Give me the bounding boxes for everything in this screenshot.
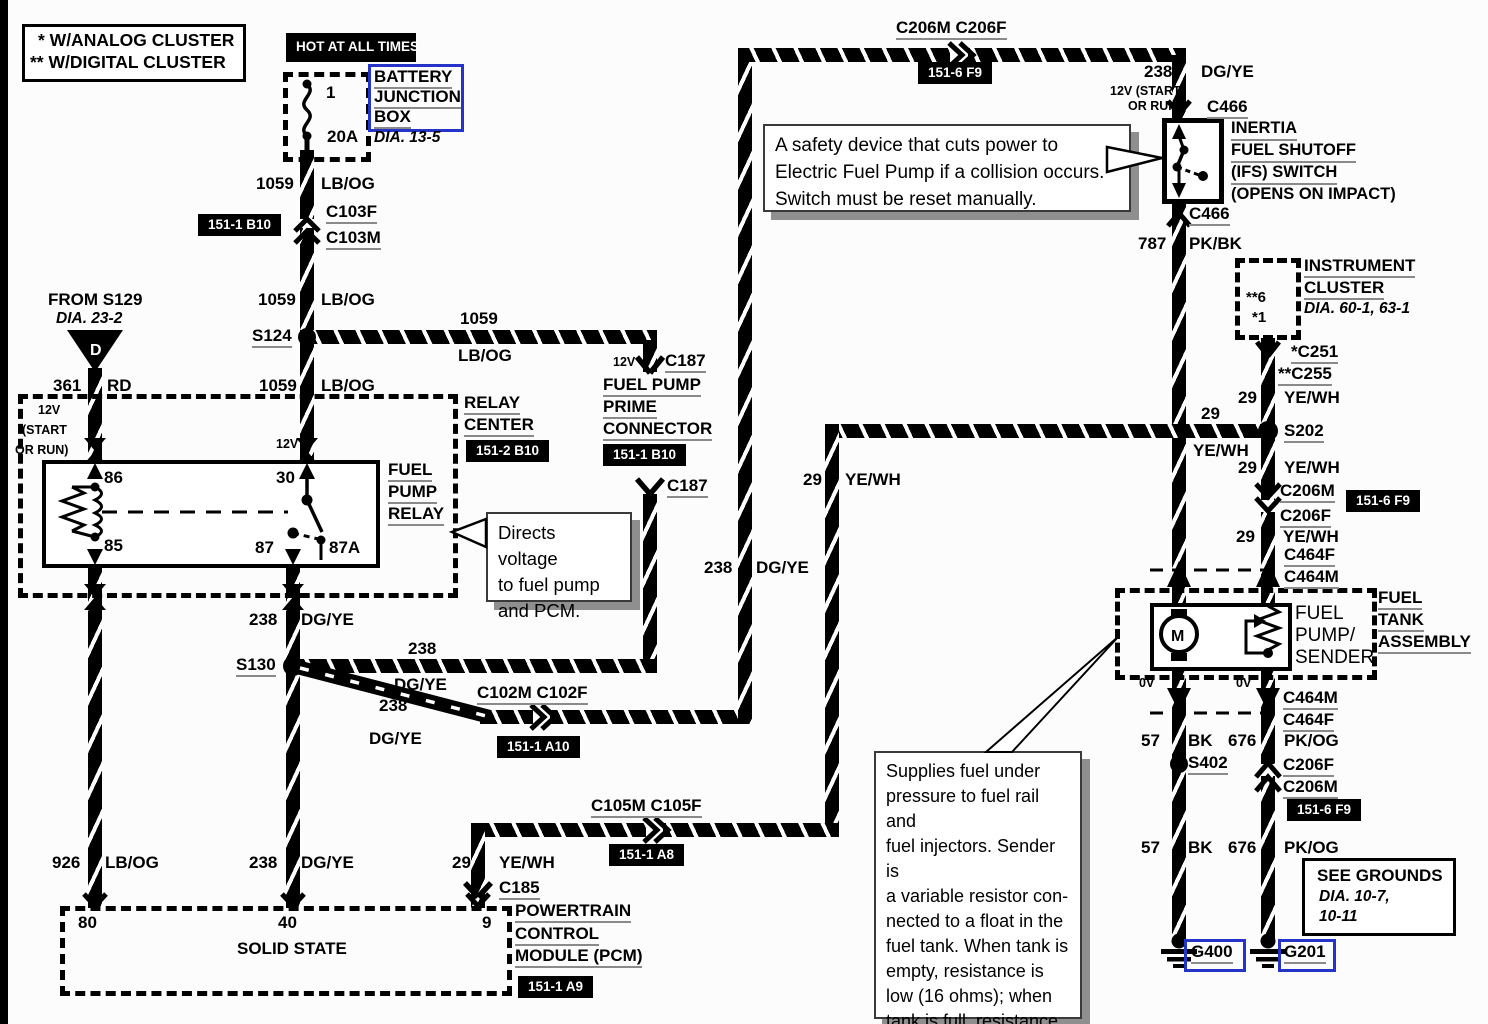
label-787: 787 bbox=[1138, 235, 1166, 253]
legend-box: * W/ANALOG CLUSTER ** W/DIGITAL CLUSTER bbox=[22, 24, 246, 82]
label-29-h: 29 bbox=[1201, 405, 1220, 423]
label-g201[interactable]: G201 bbox=[1284, 943, 1326, 964]
label-pcm-3: MODULE (PCM) bbox=[515, 947, 642, 968]
label-57-b: 57 bbox=[1141, 839, 1160, 857]
supplies-callout: Supplies fuel under pressure to fuel rai… bbox=[874, 751, 1082, 1019]
s129-triangle-icon: D bbox=[67, 330, 123, 372]
instrument-cluster-box bbox=[1235, 258, 1301, 340]
label-cluster-dia: DIA. 60-1, 63-1 bbox=[1304, 301, 1410, 318]
label-c255: **C255 bbox=[1278, 365, 1332, 386]
label-12v-relay: 12V bbox=[276, 438, 298, 452]
label-c102: C102M C102F bbox=[477, 684, 588, 705]
supplies-line-1: Supplies fuel under bbox=[886, 759, 1070, 784]
label-c251: *C251 bbox=[1291, 343, 1338, 364]
label-ifs-3: (IFS) SWITCH bbox=[1231, 164, 1337, 185]
label-pcm-1: POWERTRAIN bbox=[515, 902, 631, 923]
supplies-line-3: fuel injectors. Sender is bbox=[886, 834, 1070, 884]
supplies-line-5: nected to a float in the bbox=[886, 909, 1070, 934]
label-c185: C185 bbox=[499, 879, 540, 900]
label-yewh-b: YE/WH bbox=[1284, 459, 1340, 477]
label-29-drop: 29 bbox=[803, 471, 822, 489]
legend-digital: ** W/DIGITAL CLUSTER bbox=[30, 53, 226, 72]
safety-line-3: Switch must be reset manually. bbox=[775, 186, 1119, 213]
scan-edge bbox=[0, 0, 8, 1024]
label-lbog-a: LB/OG bbox=[321, 175, 375, 193]
supplies-line-2: pressure to fuel rail and bbox=[886, 784, 1070, 834]
label-start-left: (START bbox=[22, 424, 67, 438]
label-12v-left: 12V bbox=[38, 404, 60, 418]
bjb-dia: DIA. 13-5 bbox=[374, 130, 440, 147]
supplies-pointer bbox=[986, 636, 1119, 752]
label-prime-3: CONNECTOR bbox=[603, 420, 712, 441]
label-pkbk: PK/BK bbox=[1189, 235, 1242, 253]
label-1059-b: 1059 bbox=[258, 291, 296, 309]
wire-cluster-to-sender bbox=[1261, 338, 1275, 612]
see-grounds-dia1: DIA. 10-7, bbox=[1319, 889, 1390, 906]
label-lbog-b: LB/OG bbox=[321, 291, 375, 309]
ref-tag-pcm: 151-1 A9 bbox=[518, 976, 593, 998]
fuse-rating: 20A bbox=[327, 128, 358, 146]
label-pump-3: SENDER bbox=[1295, 648, 1374, 669]
label-c105: C105M C105F bbox=[591, 797, 702, 818]
label-0v-right: 0V bbox=[1236, 677, 1251, 691]
label-c206f-right: C206F bbox=[1280, 507, 1331, 528]
ref-tag-c105: 151-1 A8 bbox=[609, 844, 684, 866]
label-12v-start-right: 12V (START bbox=[1110, 85, 1181, 99]
label-12v-prime: 12V bbox=[613, 356, 635, 370]
label-238-ifs: 238 bbox=[1144, 63, 1172, 81]
label-dgye-b: DG/YE bbox=[394, 676, 447, 694]
wire-prime-stub bbox=[643, 340, 657, 372]
ref-tag-c206-lower: 151-6 F9 bbox=[1287, 799, 1361, 821]
wire-c187-down bbox=[643, 494, 657, 673]
label-c466-lower: C466 bbox=[1189, 205, 1230, 226]
label-s402: S402 bbox=[1188, 754, 1228, 775]
wire-relay87-to-pcm40 bbox=[286, 564, 300, 908]
label-solid-state: SOLID STATE bbox=[237, 940, 347, 958]
supplies-line-6: fuel tank. When tank is bbox=[886, 934, 1070, 959]
label-676-a: 676 bbox=[1228, 732, 1256, 750]
label-bk-a: BK bbox=[1188, 732, 1213, 750]
ref-tag-relay-center: 151-2 B10 bbox=[466, 440, 549, 462]
label-238-riser: 238 bbox=[704, 559, 732, 577]
label-cluster-pin6: **6 bbox=[1246, 290, 1266, 306]
label-dgye-a: DG/YE bbox=[301, 611, 354, 629]
fuse-number: 1 bbox=[326, 84, 335, 102]
label-tank-2: TANK bbox=[1378, 611, 1424, 632]
label-c206-top: C206M C206F bbox=[896, 19, 1007, 40]
label-s202: S202 bbox=[1284, 422, 1324, 443]
label-dgye-riser: DG/YE bbox=[756, 559, 809, 577]
label-ifs-2: FUEL SHUTOFF bbox=[1231, 142, 1356, 163]
label-yewh-drop: YE/WH bbox=[845, 471, 901, 489]
directs-callout: Directs voltage to fuel pump and PCM. bbox=[486, 512, 632, 602]
ref-tag-c206-right: 151-6 F9 bbox=[1346, 490, 1420, 512]
label-tank-1: FUEL bbox=[1378, 589, 1422, 610]
wire-c185-to-pcm9 bbox=[471, 823, 485, 908]
label-238-d: 238 bbox=[249, 854, 277, 872]
label-dgye-c: DG/YE bbox=[369, 730, 422, 748]
ref-tag-c206-top: 151-6 F9 bbox=[918, 62, 992, 84]
label-pin-87a: 87A bbox=[329, 539, 360, 557]
label-prime-2: PRIME bbox=[603, 398, 657, 419]
directs-line-1: Directs voltage bbox=[498, 520, 620, 572]
label-yewh-a: YE/WH bbox=[1284, 389, 1340, 407]
label-dgye-ifs: DG/YE bbox=[1201, 63, 1254, 81]
label-pin-40: 40 bbox=[278, 914, 297, 932]
label-cluster-2: CLUSTER bbox=[1304, 279, 1384, 300]
bjb-label-3: BOX bbox=[374, 108, 411, 129]
label-c187-lower: C187 bbox=[667, 477, 708, 498]
label-s130: S130 bbox=[236, 656, 276, 677]
label-c206m-lower: C206M bbox=[1283, 778, 1338, 799]
safety-line-2: Electric Fuel Pump if a collision occurs… bbox=[775, 159, 1119, 186]
ifs-switch-box bbox=[1162, 118, 1224, 204]
wire-c102 bbox=[480, 710, 752, 724]
label-bk-b: BK bbox=[1188, 839, 1213, 857]
label-ifs-4: (OPENS ON IMPACT) bbox=[1231, 186, 1396, 204]
wire-29-drop bbox=[825, 424, 839, 837]
wire-s130-to-c187 bbox=[293, 659, 657, 673]
label-676-b: 676 bbox=[1228, 839, 1256, 857]
label-c464m-lower: C464M bbox=[1283, 689, 1338, 710]
label-orrun-right: OR RUN) bbox=[1128, 100, 1181, 114]
supplies-line-9: tank is full, resistance bbox=[886, 1009, 1070, 1024]
label-c206f-lower: C206F bbox=[1283, 756, 1334, 777]
label-c464f-lower: C464F bbox=[1283, 711, 1334, 732]
label-c466-upper: C466 bbox=[1207, 98, 1248, 119]
wire-238-riser bbox=[738, 48, 752, 724]
label-pin-80: 80 bbox=[78, 914, 97, 932]
safety-callout: A safety device that cuts power to Elect… bbox=[763, 124, 1131, 212]
label-238-b: 238 bbox=[408, 640, 436, 658]
wire-c105 bbox=[478, 823, 839, 837]
label-1059-c: 1059 bbox=[460, 310, 498, 328]
wire-relay85-to-pcm80 bbox=[88, 564, 102, 908]
label-1059-d: 1059 bbox=[259, 377, 297, 395]
label-orrun-left: OR RUN) bbox=[15, 444, 68, 458]
label-pump-2: PUMP/ bbox=[1295, 626, 1355, 647]
directs-line-2: to fuel pump bbox=[498, 572, 620, 598]
label-prime-1: FUEL PUMP bbox=[603, 376, 701, 397]
label-pin-87: 87 bbox=[255, 539, 274, 557]
label-c103m: C103M bbox=[326, 229, 381, 250]
label-57-a: 57 bbox=[1141, 732, 1160, 750]
label-from-s129: FROM S129 bbox=[48, 291, 142, 309]
label-s129-dia: DIA. 23-2 bbox=[56, 311, 122, 328]
label-g400[interactable]: G400 bbox=[1191, 943, 1233, 964]
label-361: 361 bbox=[53, 377, 81, 395]
safety-line-1: A safety device that cuts power to bbox=[775, 132, 1119, 159]
label-pcm-2: CONTROL bbox=[515, 925, 599, 946]
wire-sender-ground bbox=[1261, 660, 1275, 938]
label-238-a: 238 bbox=[249, 611, 277, 629]
supplies-line-7: empty, resistance is bbox=[886, 959, 1070, 984]
label-ifs-1: INERTIA bbox=[1231, 120, 1297, 141]
label-29-a: 29 bbox=[1238, 389, 1257, 407]
label-29-c185: 29 bbox=[452, 854, 471, 872]
label-tank-3: ASSEMBLY bbox=[1378, 633, 1471, 654]
label-yewh-c: YE/WH bbox=[1283, 528, 1339, 546]
see-grounds-dia2: 10-11 bbox=[1319, 909, 1358, 926]
label-pkog-a: PK/OG bbox=[1284, 732, 1339, 750]
supplies-line-4: a variable resistor con- bbox=[886, 884, 1070, 909]
fuel-pump-sender-box bbox=[1150, 603, 1292, 671]
label-relay-center-1: RELAY bbox=[464, 394, 520, 415]
triangle-d-letter: D bbox=[90, 342, 102, 359]
label-dgye-d: DG/YE bbox=[301, 854, 354, 872]
label-0v-left: 0V bbox=[1139, 677, 1154, 691]
label-relay-3: RELAY bbox=[388, 505, 444, 526]
label-cluster-pin1: *1 bbox=[1252, 310, 1266, 326]
label-926: 926 bbox=[52, 854, 80, 872]
c187-lower-fork-icon bbox=[637, 479, 663, 494]
label-cluster-1: INSTRUMENT bbox=[1304, 257, 1415, 278]
label-rd: RD bbox=[107, 377, 132, 395]
label-29-b: 29 bbox=[1238, 459, 1257, 477]
wire-pump-ground bbox=[1172, 660, 1186, 938]
label-relay-center-2: CENTER bbox=[464, 416, 534, 437]
label-29-c: 29 bbox=[1236, 528, 1255, 546]
label-s124: S124 bbox=[252, 327, 292, 348]
see-grounds-box: SEE GROUNDS DIA. 10-7, 10-11 bbox=[1302, 858, 1456, 936]
label-c464f-upper: C464F bbox=[1284, 546, 1335, 567]
label-238-c: 238 bbox=[379, 697, 407, 715]
supplies-line-8: low (16 ohms); when bbox=[886, 984, 1070, 1009]
label-pump-1: FUEL bbox=[1295, 604, 1344, 625]
label-lbog-c: LB/OG bbox=[458, 347, 512, 365]
label-lbog-d: LB/OG bbox=[321, 377, 375, 395]
wire-s124-to-prime bbox=[300, 330, 657, 344]
wiring-diagram-page: * W/ANALOG CLUSTER ** W/DIGITAL CLUSTER … bbox=[0, 0, 1488, 1024]
ref-tag-c103: 151-1 B10 bbox=[198, 214, 281, 236]
label-yewh-c185: YE/WH bbox=[499, 854, 555, 872]
see-grounds-title: SEE GROUNDS bbox=[1317, 867, 1443, 885]
label-c103f: C103F bbox=[326, 203, 377, 224]
label-relay-2: PUMP bbox=[388, 483, 437, 504]
label-pkog-b: PK/OG bbox=[1284, 839, 1339, 857]
legend-analog: * W/ANALOG CLUSTER bbox=[38, 31, 234, 50]
label-1059-a: 1059 bbox=[256, 175, 294, 193]
directs-line-3: and PCM. bbox=[498, 598, 620, 624]
label-pin-30: 30 bbox=[276, 469, 295, 487]
label-pin-86: 86 bbox=[104, 469, 123, 487]
wire-29-horizontal bbox=[825, 424, 1268, 438]
label-lbog-e: LB/OG bbox=[105, 854, 159, 872]
wire-top-run bbox=[738, 48, 1186, 62]
label-relay-1: FUEL bbox=[388, 461, 432, 482]
label-pin-85: 85 bbox=[104, 537, 123, 555]
ref-tag-c102: 151-1 A10 bbox=[497, 736, 580, 758]
label-c206m-right: C206M bbox=[1280, 482, 1335, 503]
label-c187-upper: C187 bbox=[665, 352, 706, 373]
label-pin-9: 9 bbox=[482, 914, 491, 932]
label-c464m-upper: C464M bbox=[1284, 568, 1339, 589]
ref-tag-prime: 151-1 B10 bbox=[603, 444, 686, 466]
hot-at-all-times-tag: HOT AT ALL TIMES bbox=[286, 33, 416, 62]
wire-787-to-pump bbox=[1172, 199, 1186, 612]
